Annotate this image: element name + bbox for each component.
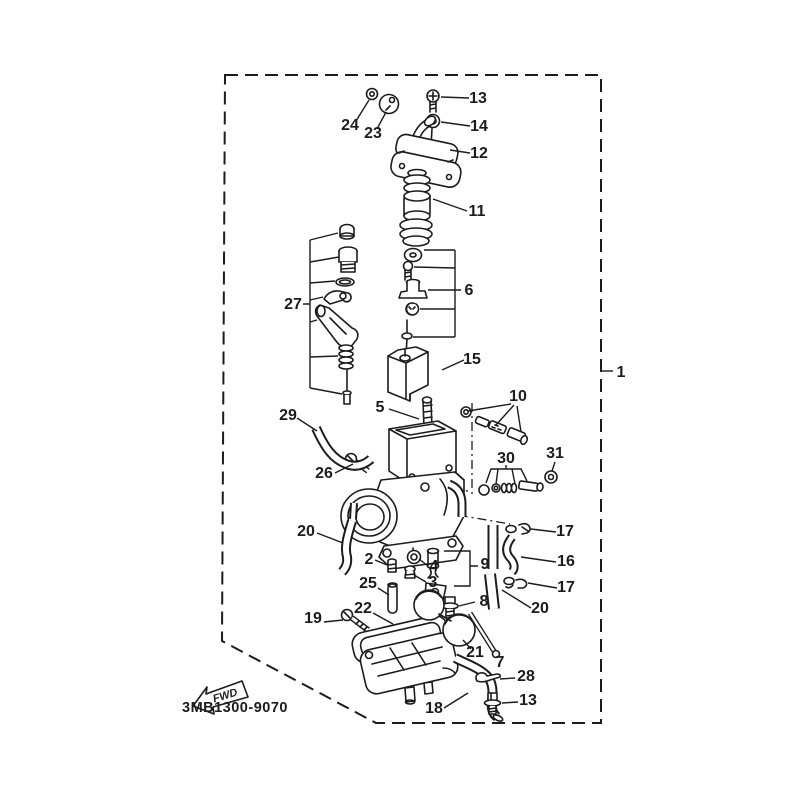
callout-17-lower: 17 — [557, 579, 575, 596]
part-nut-4 — [408, 551, 421, 564]
callout-5: 5 — [376, 399, 385, 416]
part-group-30 — [479, 481, 544, 495]
part-bracket-15 — [388, 347, 428, 401]
part-valve-seat-3 — [405, 566, 415, 578]
callout-26: 26 — [315, 465, 333, 482]
callout-3: 3 — [429, 574, 438, 591]
part-hose-16 — [507, 537, 515, 572]
part-hose-29 — [316, 428, 371, 466]
callout-14: 14 — [470, 118, 488, 135]
callout-12: 12 — [470, 145, 488, 162]
callout-28: 28 — [517, 668, 535, 685]
callout-4: 4 — [430, 558, 439, 575]
part-group-27 — [316, 225, 358, 405]
callout-16: 16 — [557, 553, 575, 570]
callout-7: 7 — [496, 654, 505, 671]
part-group-6 — [399, 249, 427, 355]
callout-27: 27 — [284, 296, 302, 313]
callout-20-left: 20 — [297, 523, 315, 540]
callout-20-right: 20 — [531, 600, 549, 617]
part-screw-13-top — [427, 90, 439, 112]
callout-19: 19 — [304, 610, 322, 627]
callout-2: 2 — [365, 551, 374, 568]
callout-11: 11 — [469, 203, 486, 220]
exploded-parts-diagram: 1 24 23 13 14 12 11 6 27 15 5 29 26 10 3… — [0, 0, 800, 800]
callout-21: 21 — [466, 644, 484, 661]
callout-30: 30 — [497, 450, 515, 467]
part-tube-20-right-lower — [490, 574, 494, 609]
callout-8: 8 — [480, 593, 489, 610]
callout-23: 23 — [364, 125, 382, 142]
part-clip-17-upper — [506, 524, 530, 534]
callout-31: 31 — [546, 445, 564, 462]
callout-29: 29 — [279, 407, 297, 424]
part-tube-25 — [388, 583, 397, 613]
part-grommet-23 — [380, 95, 399, 114]
callout-13: 13 — [469, 90, 487, 107]
callout-13-bottom: 13 — [519, 692, 537, 709]
callout-17-upper: 17 — [556, 523, 574, 540]
callout-22: 22 — [354, 600, 372, 617]
carburetor-body — [341, 397, 464, 569]
part-spring-11 — [400, 170, 432, 247]
part-clip-17-lower — [504, 578, 527, 589]
callout-9: 9 — [481, 556, 490, 573]
callout-1: 1 — [617, 364, 626, 381]
callout-18: 18 — [425, 700, 443, 717]
callout-25: 25 — [359, 575, 377, 592]
part-nut-31 — [545, 471, 557, 483]
part-jet-2 — [388, 559, 396, 572]
callout-24: 24 — [341, 117, 359, 134]
part-nut-24 — [367, 89, 378, 100]
callout-15: 15 — [463, 351, 481, 368]
callout-10: 10 — [509, 388, 527, 405]
callout-6: 6 — [465, 282, 474, 299]
parts-diagram-page: 1 24 23 13 14 12 11 6 27 15 5 29 26 10 3… — [0, 0, 800, 800]
diagram-code: 3MB1300-9070 — [182, 700, 288, 716]
